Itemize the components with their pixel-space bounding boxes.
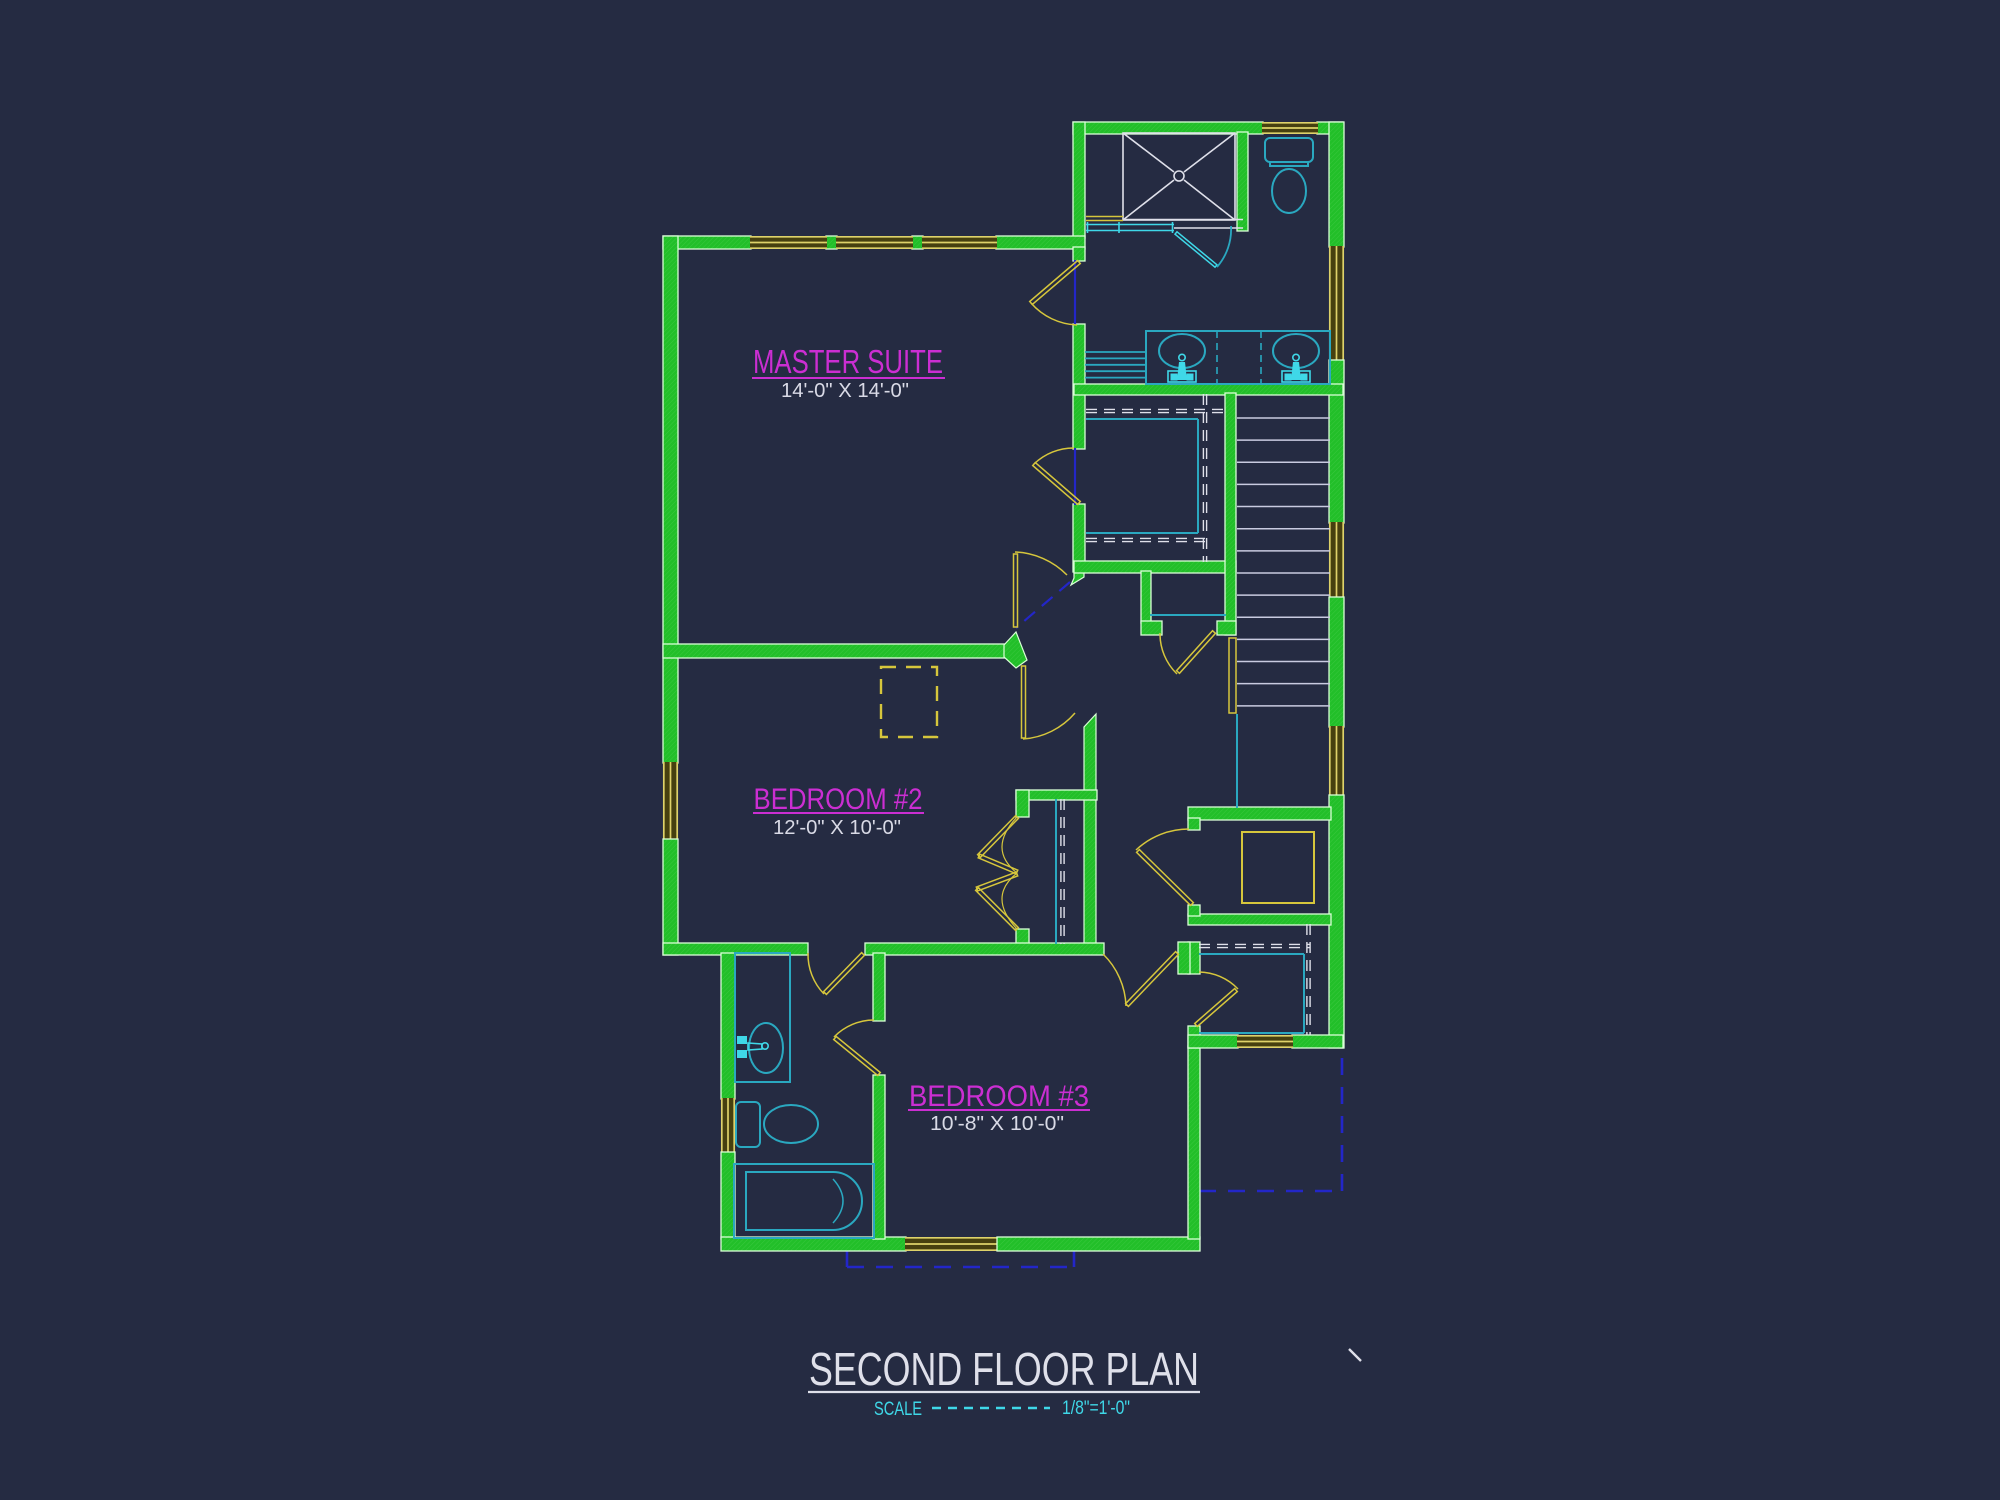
svg-text:12'-0" X 10'-0": 12'-0" X 10'-0" — [773, 817, 901, 839]
svg-text:MASTER SUITE: MASTER SUITE — [753, 343, 943, 380]
svg-text:14'-0" X 14'-0": 14'-0" X 14'-0" — [781, 380, 909, 402]
svg-text:SCALE: SCALE — [874, 1399, 922, 1420]
svg-text:10'-8" X 10'-0": 10'-8" X 10'-0" — [930, 1113, 1064, 1135]
svg-text:BEDROOM #3: BEDROOM #3 — [909, 1080, 1089, 1113]
svg-text:SECOND FLOOR PLAN: SECOND FLOOR PLAN — [809, 1343, 1199, 1395]
svg-text:BEDROOM #2: BEDROOM #2 — [754, 783, 923, 816]
svg-text:1/8"=1'-0": 1/8"=1'-0" — [1062, 1398, 1130, 1419]
